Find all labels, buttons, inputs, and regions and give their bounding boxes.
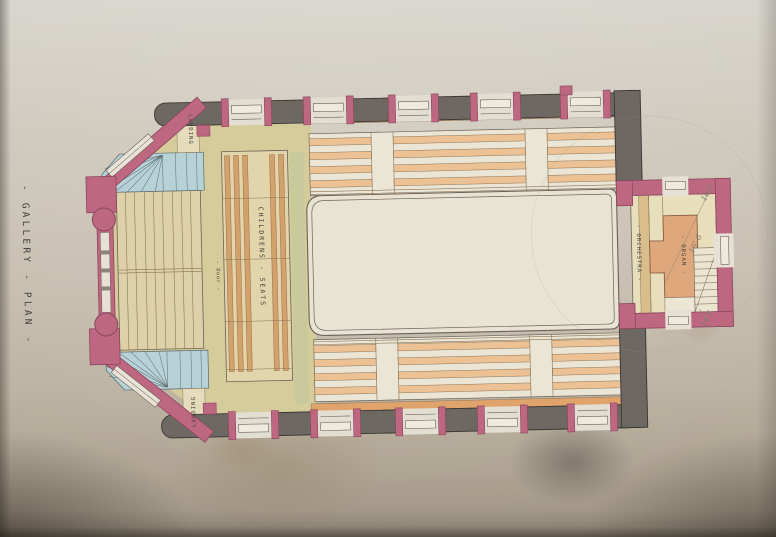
organ-chamber xyxy=(616,175,735,331)
column xyxy=(95,313,119,337)
gallery-plan-title: - GALLERY - PLAN - xyxy=(19,185,34,346)
landing-bottom-label: LANDING xyxy=(191,396,198,427)
landing-top-label: LANDING xyxy=(187,114,194,145)
west-gallery-pews xyxy=(116,190,204,350)
organ-label: - ORGAN - xyxy=(679,235,686,275)
door-label: - Door - xyxy=(214,261,221,292)
plan: - GALLERY - PLAN - LANDING LANDING CHILD… xyxy=(17,81,772,446)
photographed-drawing: - GALLERY - PLAN - LANDING LANDING CHILD… xyxy=(0,0,776,537)
childrens-seats-area xyxy=(221,150,292,381)
well-opening xyxy=(306,189,619,336)
gallery-plan-drawing: - GALLERY - PLAN - LANDING LANDING CHILD… xyxy=(0,0,776,537)
column xyxy=(92,208,116,232)
bottom-gallery-pews xyxy=(310,333,622,412)
